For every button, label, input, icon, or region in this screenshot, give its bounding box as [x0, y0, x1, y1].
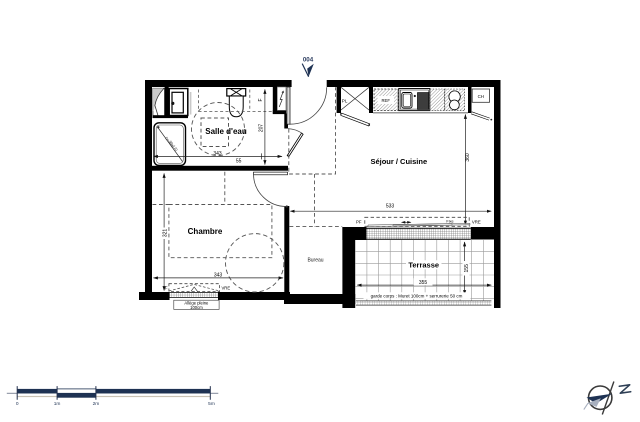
svg-text:PL: PL — [342, 99, 348, 104]
svg-text:355: 355 — [419, 280, 428, 286]
svg-text:Séjour / Cuisine: Séjour / Cuisine — [370, 157, 427, 166]
svg-text:Salle d'eau: Salle d'eau — [205, 127, 247, 136]
svg-text:Bureau: Bureau — [307, 257, 323, 263]
svg-text:F: F — [165, 286, 168, 291]
svg-text:207: 207 — [258, 124, 264, 133]
svg-text:F: F — [258, 98, 264, 101]
svg-text:343: 343 — [213, 151, 222, 157]
svg-text:100cm: 100cm — [190, 305, 203, 310]
svg-text:004: 004 — [303, 57, 314, 64]
svg-text:2m: 2m — [93, 401, 100, 407]
svg-text:CH: CH — [478, 94, 484, 99]
svg-text:VRE: VRE — [472, 220, 481, 225]
svg-text:5m: 5m — [208, 401, 215, 407]
svg-text:360: 360 — [465, 153, 471, 162]
svg-text:155: 155 — [464, 264, 470, 273]
svg-text:533: 533 — [386, 203, 395, 209]
svg-text:VRE: VRE — [222, 286, 231, 291]
svg-text:343: 343 — [214, 272, 223, 278]
svg-text:PF: PF — [356, 220, 362, 225]
svg-text:321: 321 — [162, 229, 168, 238]
svg-text:Terrasse: Terrasse — [408, 261, 439, 270]
svg-text:55: 55 — [236, 159, 242, 165]
svg-text:0: 0 — [16, 401, 19, 407]
svg-text:1m: 1m — [54, 401, 61, 407]
svg-text:Fixe: Fixe — [446, 219, 453, 223]
svg-text:garde corps : Muret 100cm + s: garde corps : Muret 100cm + serrurerie 5… — [371, 294, 463, 299]
svg-text:Chambre: Chambre — [188, 227, 223, 236]
svg-text:REF: REF — [382, 98, 391, 103]
